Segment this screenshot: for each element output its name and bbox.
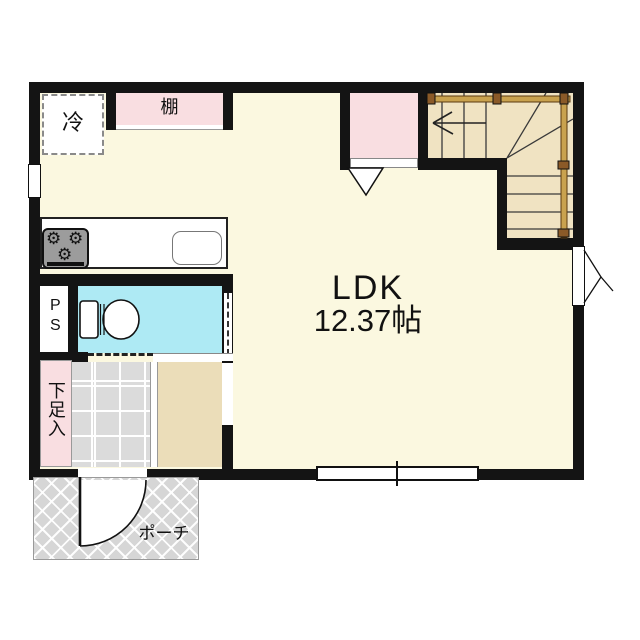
stair-wall-bottom-upper	[418, 158, 507, 170]
right-window	[572, 246, 585, 306]
pipe-space-label: PS	[46, 297, 63, 337]
ldk-area-label: 12.37帖	[283, 305, 453, 338]
ldk-label: LDK	[298, 271, 438, 307]
porch-label: ポーチ	[124, 525, 204, 543]
shelf-front-edge	[116, 125, 223, 130]
window-mullion-tick	[396, 461, 398, 486]
closet-front	[350, 158, 418, 168]
closet	[350, 93, 418, 158]
outer-wall-left	[29, 82, 40, 480]
right-window-swing	[584, 250, 613, 303]
stair-wall-inner	[497, 158, 507, 250]
outer-wall-top	[29, 82, 584, 93]
staircase-lower-run	[507, 158, 573, 238]
left-window	[28, 164, 41, 198]
shelf-wall-left	[106, 93, 116, 130]
genkan-step-strip	[150, 362, 158, 467]
kitchen-lower-wall	[29, 274, 233, 286]
washroom-folding-door	[88, 353, 153, 356]
hall-ldk-wall-stub	[222, 427, 233, 469]
hall-ldk-opening	[222, 362, 233, 427]
pipe-space-wall	[68, 286, 78, 352]
hall-floor	[158, 362, 222, 467]
closet-wall-left	[340, 93, 350, 170]
genkan-tile-floor	[72, 362, 150, 467]
washroom	[78, 286, 223, 353]
stove: ⚙ ⚙ ⚙	[42, 228, 89, 269]
opening-tick-top	[222, 361, 233, 363]
stair-wall-bottom-lower	[497, 238, 584, 250]
porch	[33, 477, 199, 560]
shoe-cabinet-label: 下足入	[46, 381, 65, 438]
shelf-wall-right	[223, 93, 233, 130]
washroom-side-door	[224, 293, 232, 355]
staircase-upper-run	[428, 93, 573, 158]
floor-plan: 冷 棚 ⚙ ⚙ ⚙ PS 下足入	[0, 0, 640, 640]
shelf-label: 棚	[116, 98, 223, 117]
stove-grill-bar	[47, 262, 84, 266]
refrigerator-label: 冷	[42, 111, 104, 134]
kitchen-sink	[172, 231, 222, 265]
